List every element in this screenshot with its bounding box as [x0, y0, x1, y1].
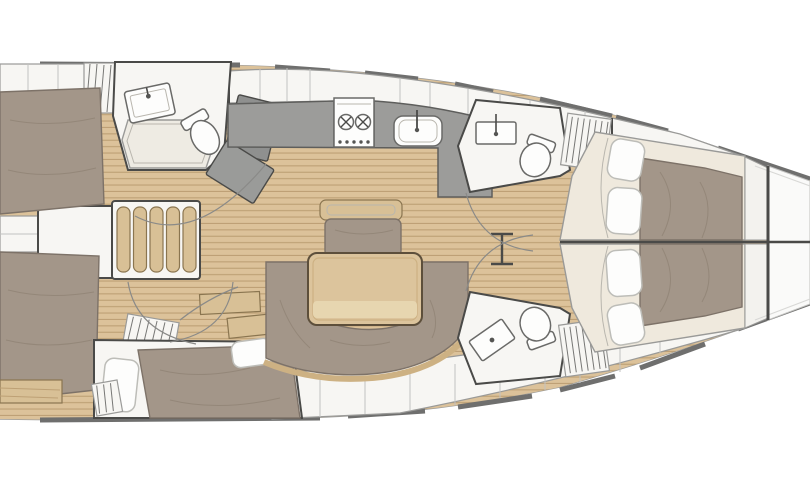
aft-berth-top — [0, 88, 104, 214]
yacht-floorplan: Sailing yacht interior layout — top-down… — [0, 0, 810, 500]
pillow — [605, 249, 642, 297]
bench-backrest — [320, 200, 402, 220]
pillow — [606, 301, 646, 346]
floorplan-svg: Sailing yacht interior layout — top-down… — [0, 0, 810, 500]
step-tread — [150, 207, 163, 272]
pillow — [605, 187, 642, 235]
pillow — [606, 137, 646, 182]
companionway-steps — [112, 201, 200, 279]
aft-cabin-port — [0, 88, 104, 214]
faucet-dot — [415, 128, 419, 132]
berth-grate — [91, 380, 122, 416]
faucet-dot — [494, 132, 498, 136]
table-leaf — [313, 301, 417, 318]
fwd-cabin-bottom — [560, 244, 768, 352]
stove — [334, 98, 374, 147]
step-tread — [117, 207, 130, 272]
salon-bench-seat — [320, 200, 402, 257]
foot-shelf — [745, 244, 768, 328]
step-tread — [167, 207, 180, 272]
grate-box — [91, 380, 122, 416]
step-tread — [183, 207, 196, 272]
stern-wood-shelf — [0, 380, 62, 403]
salon-table — [308, 253, 422, 325]
wood-shelf — [200, 291, 261, 314]
fwd-cabin-top — [560, 132, 768, 240]
aft-berth-bottom-outer — [0, 252, 99, 394]
bench-cushion — [325, 219, 401, 257]
